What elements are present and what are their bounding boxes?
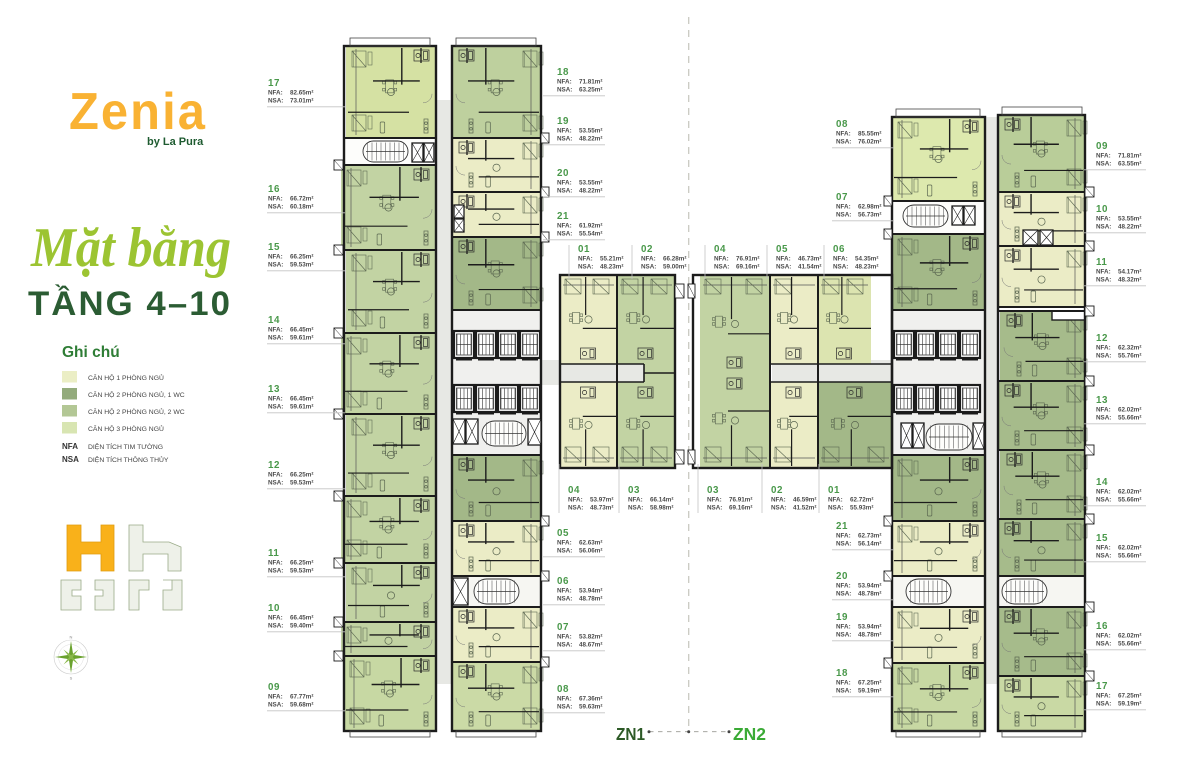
- svg-text:66.25m²: 66.25m²: [290, 472, 313, 479]
- svg-text:08: 08: [836, 119, 848, 130]
- svg-text:NFA:: NFA:: [268, 90, 283, 97]
- svg-text:63.55m²: 63.55m²: [1118, 161, 1141, 168]
- svg-text:NSA:: NSA:: [557, 548, 572, 555]
- svg-text:NSA:: NSA:: [836, 139, 851, 146]
- svg-text:54.17m²: 54.17m²: [1118, 269, 1141, 276]
- svg-text:59.19m²: 59.19m²: [858, 688, 881, 695]
- svg-text:NFA:: NFA:: [836, 680, 851, 687]
- svg-text:NSA:: NSA:: [578, 264, 593, 271]
- svg-text:NFA:: NFA:: [557, 634, 572, 641]
- svg-text:03: 03: [707, 485, 719, 496]
- svg-text:NSA:: NSA:: [557, 188, 572, 195]
- svg-text:62.98m²: 62.98m²: [858, 204, 881, 211]
- svg-text:14: 14: [1096, 477, 1108, 488]
- svg-text:NSA:: NSA:: [268, 702, 283, 709]
- svg-text:NSA:: NSA:: [268, 98, 283, 105]
- svg-text:48.73m²: 48.73m²: [590, 505, 613, 512]
- svg-text:NFA:: NFA:: [1096, 345, 1111, 352]
- svg-text:48.32m²: 48.32m²: [1118, 277, 1141, 284]
- svg-text:55.21m²: 55.21m²: [600, 256, 623, 263]
- svg-text:10: 10: [1096, 204, 1108, 215]
- svg-text:59.63m²: 59.63m²: [579, 704, 602, 711]
- svg-text:NFA:: NFA:: [1096, 153, 1111, 160]
- svg-text:NSA:: NSA:: [833, 264, 848, 271]
- svg-text:59.61m²: 59.61m²: [290, 404, 313, 411]
- svg-text:17: 17: [1096, 681, 1108, 692]
- svg-text:62.02m²: 62.02m²: [1118, 407, 1141, 414]
- svg-text:18: 18: [836, 668, 848, 679]
- svg-text:NFA:: NFA:: [557, 128, 572, 135]
- svg-text:01: 01: [578, 244, 590, 255]
- svg-text:66.25m²: 66.25m²: [290, 560, 313, 567]
- svg-text:NSA:: NSA:: [641, 264, 656, 271]
- svg-text:21: 21: [836, 521, 848, 532]
- svg-text:NFA:: NFA:: [557, 696, 572, 703]
- svg-text:Ghi chú: Ghi chú: [62, 344, 120, 361]
- svg-text:NSA:: NSA:: [268, 262, 283, 269]
- svg-text:NSA:: NSA:: [557, 87, 572, 94]
- svg-text:NFA:: NFA:: [268, 472, 283, 479]
- svg-text:NFA:: NFA:: [833, 256, 848, 263]
- svg-text:73.01m²: 73.01m²: [290, 98, 313, 105]
- svg-text:NFA:: NFA:: [268, 615, 283, 622]
- svg-text:18: 18: [557, 67, 569, 78]
- svg-text:53.94m²: 53.94m²: [858, 624, 881, 631]
- svg-text:55.66m²: 55.66m²: [1118, 641, 1141, 648]
- svg-text:82.65m²: 82.65m²: [290, 90, 313, 97]
- svg-text:NSA:: NSA:: [557, 704, 572, 711]
- svg-text:67.25m²: 67.25m²: [1118, 693, 1141, 700]
- svg-text:48.23m²: 48.23m²: [600, 264, 623, 271]
- svg-text:NFA:: NFA:: [557, 180, 572, 187]
- svg-text:62.02m²: 62.02m²: [1118, 545, 1141, 552]
- svg-text:NFA:: NFA:: [268, 254, 283, 261]
- svg-text:66.45m²: 66.45m²: [290, 396, 313, 403]
- svg-text:NSA:: NSA:: [1096, 497, 1111, 504]
- svg-text:ZN2: ZN2: [733, 724, 766, 744]
- svg-text:66.72m²: 66.72m²: [290, 196, 313, 203]
- svg-text:76.91m²: 76.91m²: [736, 256, 759, 263]
- svg-text:59.61m²: 59.61m²: [290, 335, 313, 342]
- svg-text:NFA:: NFA:: [578, 256, 593, 263]
- svg-text:CĂN HỘ 2 PHÒNG NGỦ, 1 WC: CĂN HỘ 2 PHÒNG NGỦ, 1 WC: [88, 390, 185, 399]
- svg-text:02: 02: [771, 485, 783, 496]
- svg-text:71.81m²: 71.81m²: [1118, 153, 1141, 160]
- svg-text:53.94m²: 53.94m²: [579, 588, 602, 595]
- svg-text:by La Pura: by La Pura: [147, 136, 204, 148]
- svg-text:NFA:: NFA:: [628, 497, 643, 504]
- svg-text:NFA:: NFA:: [268, 694, 283, 701]
- svg-text:NSA:: NSA:: [268, 404, 283, 411]
- svg-text:19: 19: [557, 116, 569, 127]
- svg-text:53.82m²: 53.82m²: [579, 634, 602, 641]
- svg-text:09: 09: [1096, 141, 1108, 152]
- svg-text:DIỆN TÍCH TIM TƯỜNG: DIỆN TÍCH TIM TƯỜNG: [88, 442, 163, 451]
- svg-text:10: 10: [268, 603, 280, 614]
- svg-text:59.53m²: 59.53m²: [290, 568, 313, 575]
- svg-text:20: 20: [836, 571, 848, 582]
- svg-text:55.54m²: 55.54m²: [579, 231, 602, 238]
- svg-text:67.77m²: 67.77m²: [290, 694, 313, 701]
- svg-text:N: N: [70, 635, 73, 640]
- svg-text:NFA:: NFA:: [1096, 545, 1111, 552]
- svg-text:66.25m²: 66.25m²: [290, 254, 313, 261]
- svg-text:59.53m²: 59.53m²: [290, 480, 313, 487]
- svg-text:NSA:: NSA:: [828, 505, 843, 512]
- svg-text:04: 04: [714, 244, 726, 255]
- svg-text:NFA:: NFA:: [557, 79, 572, 86]
- svg-text:14: 14: [268, 315, 280, 326]
- svg-text:55.93m²: 55.93m²: [850, 505, 873, 512]
- svg-text:NSA:: NSA:: [1096, 277, 1111, 284]
- svg-text:NSA:: NSA:: [836, 212, 851, 219]
- svg-text:66.28m²: 66.28m²: [663, 256, 686, 263]
- svg-text:16: 16: [1096, 621, 1108, 632]
- svg-text:85.55m²: 85.55m²: [858, 131, 881, 138]
- svg-text:NSA:: NSA:: [1096, 701, 1111, 708]
- svg-text:NFA:: NFA:: [268, 327, 283, 334]
- svg-text:48.22m²: 48.22m²: [1118, 224, 1141, 231]
- svg-text:62.72m²: 62.72m²: [850, 497, 873, 504]
- svg-text:CĂN HỘ 2 PHÒNG NGỦ, 2 WC: CĂN HỘ 2 PHÒNG NGỦ, 2 WC: [88, 407, 185, 416]
- svg-text:62.63m²: 62.63m²: [579, 540, 602, 547]
- svg-text:15: 15: [268, 242, 280, 253]
- svg-text:53.55m²: 53.55m²: [579, 128, 602, 135]
- svg-text:71.81m²: 71.81m²: [579, 79, 602, 86]
- svg-text:53.94m²: 53.94m²: [858, 583, 881, 590]
- svg-text:NSA:: NSA:: [268, 568, 283, 575]
- svg-text:11: 11: [268, 548, 279, 559]
- svg-text:NFA:: NFA:: [836, 533, 851, 540]
- svg-text:69.16m²: 69.16m²: [736, 264, 759, 271]
- svg-text:41.54m²: 41.54m²: [798, 264, 821, 271]
- svg-text:54.35m²: 54.35m²: [855, 256, 878, 263]
- svg-text:15: 15: [1096, 533, 1108, 544]
- svg-text:NSA:: NSA:: [836, 591, 851, 598]
- svg-text:NFA:: NFA:: [836, 624, 851, 631]
- svg-text:NFA:: NFA:: [771, 497, 786, 504]
- svg-text:08: 08: [557, 684, 569, 695]
- svg-text:CĂN HỘ 1 PHÒNG NGỦ: CĂN HỘ 1 PHÒNG NGỦ: [88, 373, 164, 382]
- svg-text:DIỆN TÍCH THÔNG THỦY: DIỆN TÍCH THÔNG THỦY: [88, 455, 169, 464]
- svg-text:62.73m²: 62.73m²: [858, 533, 881, 540]
- svg-text:55.66m²: 55.66m²: [1118, 553, 1141, 560]
- svg-text:NFA:: NFA:: [568, 497, 583, 504]
- svg-text:20: 20: [557, 168, 569, 179]
- svg-text:NFA:: NFA:: [836, 131, 851, 138]
- svg-text:NSA:: NSA:: [1096, 353, 1111, 360]
- svg-text:NFA:: NFA:: [836, 583, 851, 590]
- svg-text:NFA:: NFA:: [557, 588, 572, 595]
- svg-text:NSA:: NSA:: [836, 632, 851, 639]
- svg-text:NSA:: NSA:: [268, 204, 283, 211]
- svg-text:66.45m²: 66.45m²: [290, 327, 313, 334]
- svg-text:46.59m²: 46.59m²: [793, 497, 816, 504]
- svg-text:NFA:: NFA:: [828, 497, 843, 504]
- svg-text:56.06m²: 56.06m²: [579, 548, 602, 555]
- svg-text:CĂN HỘ 3 PHÒNG NGỦ: CĂN HỘ 3 PHÒNG NGỦ: [88, 424, 164, 433]
- svg-text:16: 16: [268, 184, 280, 195]
- svg-text:12: 12: [1096, 333, 1108, 344]
- svg-text:12: 12: [268, 460, 280, 471]
- svg-text:48.78m²: 48.78m²: [858, 632, 881, 639]
- svg-text:NFA:: NFA:: [1096, 269, 1111, 276]
- svg-text:NSA:: NSA:: [557, 596, 572, 603]
- svg-text:NSA:: NSA:: [1096, 415, 1111, 422]
- svg-text:46.73m²: 46.73m²: [798, 256, 821, 263]
- svg-text:NSA:: NSA:: [1096, 161, 1111, 168]
- svg-text:NFA: NFA: [62, 442, 78, 451]
- svg-text:NSA: NSA: [62, 455, 79, 464]
- svg-text:NFA:: NFA:: [836, 204, 851, 211]
- svg-text:NSA:: NSA:: [268, 480, 283, 487]
- svg-text:59.40m²: 59.40m²: [290, 623, 313, 630]
- svg-text:05: 05: [557, 528, 569, 539]
- svg-text:NSA:: NSA:: [1096, 224, 1111, 231]
- svg-text:62.32m²: 62.32m²: [1118, 345, 1141, 352]
- svg-text:06: 06: [833, 244, 845, 255]
- svg-text:48.78m²: 48.78m²: [579, 596, 602, 603]
- svg-text:67.25m²: 67.25m²: [858, 680, 881, 687]
- svg-text:48.22m²: 48.22m²: [579, 136, 602, 143]
- svg-text:63.25m²: 63.25m²: [579, 87, 602, 94]
- svg-text:59.19m²: 59.19m²: [1118, 701, 1141, 708]
- svg-text:62.02m²: 62.02m²: [1118, 633, 1141, 640]
- svg-text:53.55m²: 53.55m²: [1118, 216, 1141, 223]
- svg-text:NSA:: NSA:: [707, 505, 722, 512]
- svg-text:NSA:: NSA:: [771, 505, 786, 512]
- svg-text:NFA:: NFA:: [1096, 693, 1111, 700]
- svg-text:02: 02: [641, 244, 653, 255]
- svg-text:53.97m²: 53.97m²: [590, 497, 613, 504]
- svg-text:48.67m²: 48.67m²: [579, 642, 602, 649]
- svg-text:19: 19: [836, 612, 848, 623]
- svg-text:59.00m²: 59.00m²: [663, 264, 686, 271]
- svg-text:05: 05: [776, 244, 788, 255]
- svg-text:NFA:: NFA:: [268, 196, 283, 203]
- svg-text:TẦNG 4–10: TẦNG 4–10: [28, 285, 232, 323]
- svg-text:55.66m²: 55.66m²: [1118, 415, 1141, 422]
- svg-text:03: 03: [628, 485, 640, 496]
- svg-text:17: 17: [268, 78, 280, 89]
- svg-text:21: 21: [557, 211, 569, 222]
- svg-text:NFA:: NFA:: [1096, 216, 1111, 223]
- svg-text:69.16m²: 69.16m²: [729, 505, 752, 512]
- svg-text:55.66m²: 55.66m²: [1118, 497, 1141, 504]
- svg-text:NFA:: NFA:: [557, 223, 572, 230]
- svg-text:NSA:: NSA:: [836, 688, 851, 695]
- svg-text:Zenia: Zenia: [69, 83, 207, 141]
- svg-text:NSA:: NSA:: [836, 541, 851, 548]
- svg-text:11: 11: [1096, 257, 1107, 268]
- svg-text:NFA:: NFA:: [707, 497, 722, 504]
- svg-text:59.53m²: 59.53m²: [290, 262, 313, 269]
- svg-text:NFA:: NFA:: [268, 396, 283, 403]
- svg-text:NSA:: NSA:: [714, 264, 729, 271]
- svg-text:53.55m²: 53.55m²: [579, 180, 602, 187]
- svg-text:NSA:: NSA:: [557, 642, 572, 649]
- svg-text:S: S: [70, 676, 73, 681]
- svg-text:56.14m²: 56.14m²: [858, 541, 881, 548]
- svg-text:NFA:: NFA:: [268, 560, 283, 567]
- svg-text:NFA:: NFA:: [714, 256, 729, 263]
- svg-text:48.78m²: 48.78m²: [858, 591, 881, 598]
- svg-text:NFA:: NFA:: [557, 540, 572, 547]
- svg-text:59.68m²: 59.68m²: [290, 702, 313, 709]
- svg-text:48.22m²: 48.22m²: [579, 188, 602, 195]
- svg-text:NSA:: NSA:: [268, 335, 283, 342]
- svg-text:06: 06: [557, 576, 569, 587]
- svg-text:NSA:: NSA:: [1096, 641, 1111, 648]
- svg-text:NSA:: NSA:: [557, 231, 572, 238]
- svg-text:09: 09: [268, 682, 280, 693]
- svg-text:48.23m²: 48.23m²: [855, 264, 878, 271]
- svg-text:NSA:: NSA:: [628, 505, 643, 512]
- svg-text:62.02m²: 62.02m²: [1118, 489, 1141, 496]
- svg-text:04: 04: [568, 485, 580, 496]
- svg-text:NSA:: NSA:: [776, 264, 791, 271]
- svg-text:NFA:: NFA:: [776, 256, 791, 263]
- svg-text:NSA:: NSA:: [1096, 553, 1111, 560]
- svg-text:66.14m²: 66.14m²: [650, 497, 673, 504]
- svg-text:76.02m²: 76.02m²: [858, 139, 881, 146]
- svg-text:61.92m²: 61.92m²: [579, 223, 602, 230]
- svg-text:58.98m²: 58.98m²: [650, 505, 673, 512]
- svg-text:NFA:: NFA:: [641, 256, 656, 263]
- svg-text:NSA:: NSA:: [268, 623, 283, 630]
- svg-text:NFA:: NFA:: [1096, 633, 1111, 640]
- svg-text:01: 01: [828, 485, 840, 496]
- svg-text:13: 13: [1096, 395, 1108, 406]
- svg-text:55.76m²: 55.76m²: [1118, 353, 1141, 360]
- svg-text:41.52m²: 41.52m²: [793, 505, 816, 512]
- svg-text:13: 13: [268, 384, 280, 395]
- svg-text:NSA:: NSA:: [557, 136, 572, 143]
- svg-text:ZN1: ZN1: [616, 724, 645, 744]
- svg-text:67.36m²: 67.36m²: [579, 696, 602, 703]
- svg-text:NSA:: NSA:: [568, 505, 583, 512]
- svg-text:NFA:: NFA:: [1096, 407, 1111, 414]
- svg-text:60.18m²: 60.18m²: [290, 204, 313, 211]
- svg-text:Mặt bằng: Mặt bằng: [30, 217, 231, 279]
- svg-text:76.91m²: 76.91m²: [729, 497, 752, 504]
- svg-text:56.73m²: 56.73m²: [858, 212, 881, 219]
- svg-text:07: 07: [836, 192, 848, 203]
- svg-text:66.45m²: 66.45m²: [290, 615, 313, 622]
- svg-text:NFA:: NFA:: [1096, 489, 1111, 496]
- svg-text:07: 07: [557, 622, 569, 633]
